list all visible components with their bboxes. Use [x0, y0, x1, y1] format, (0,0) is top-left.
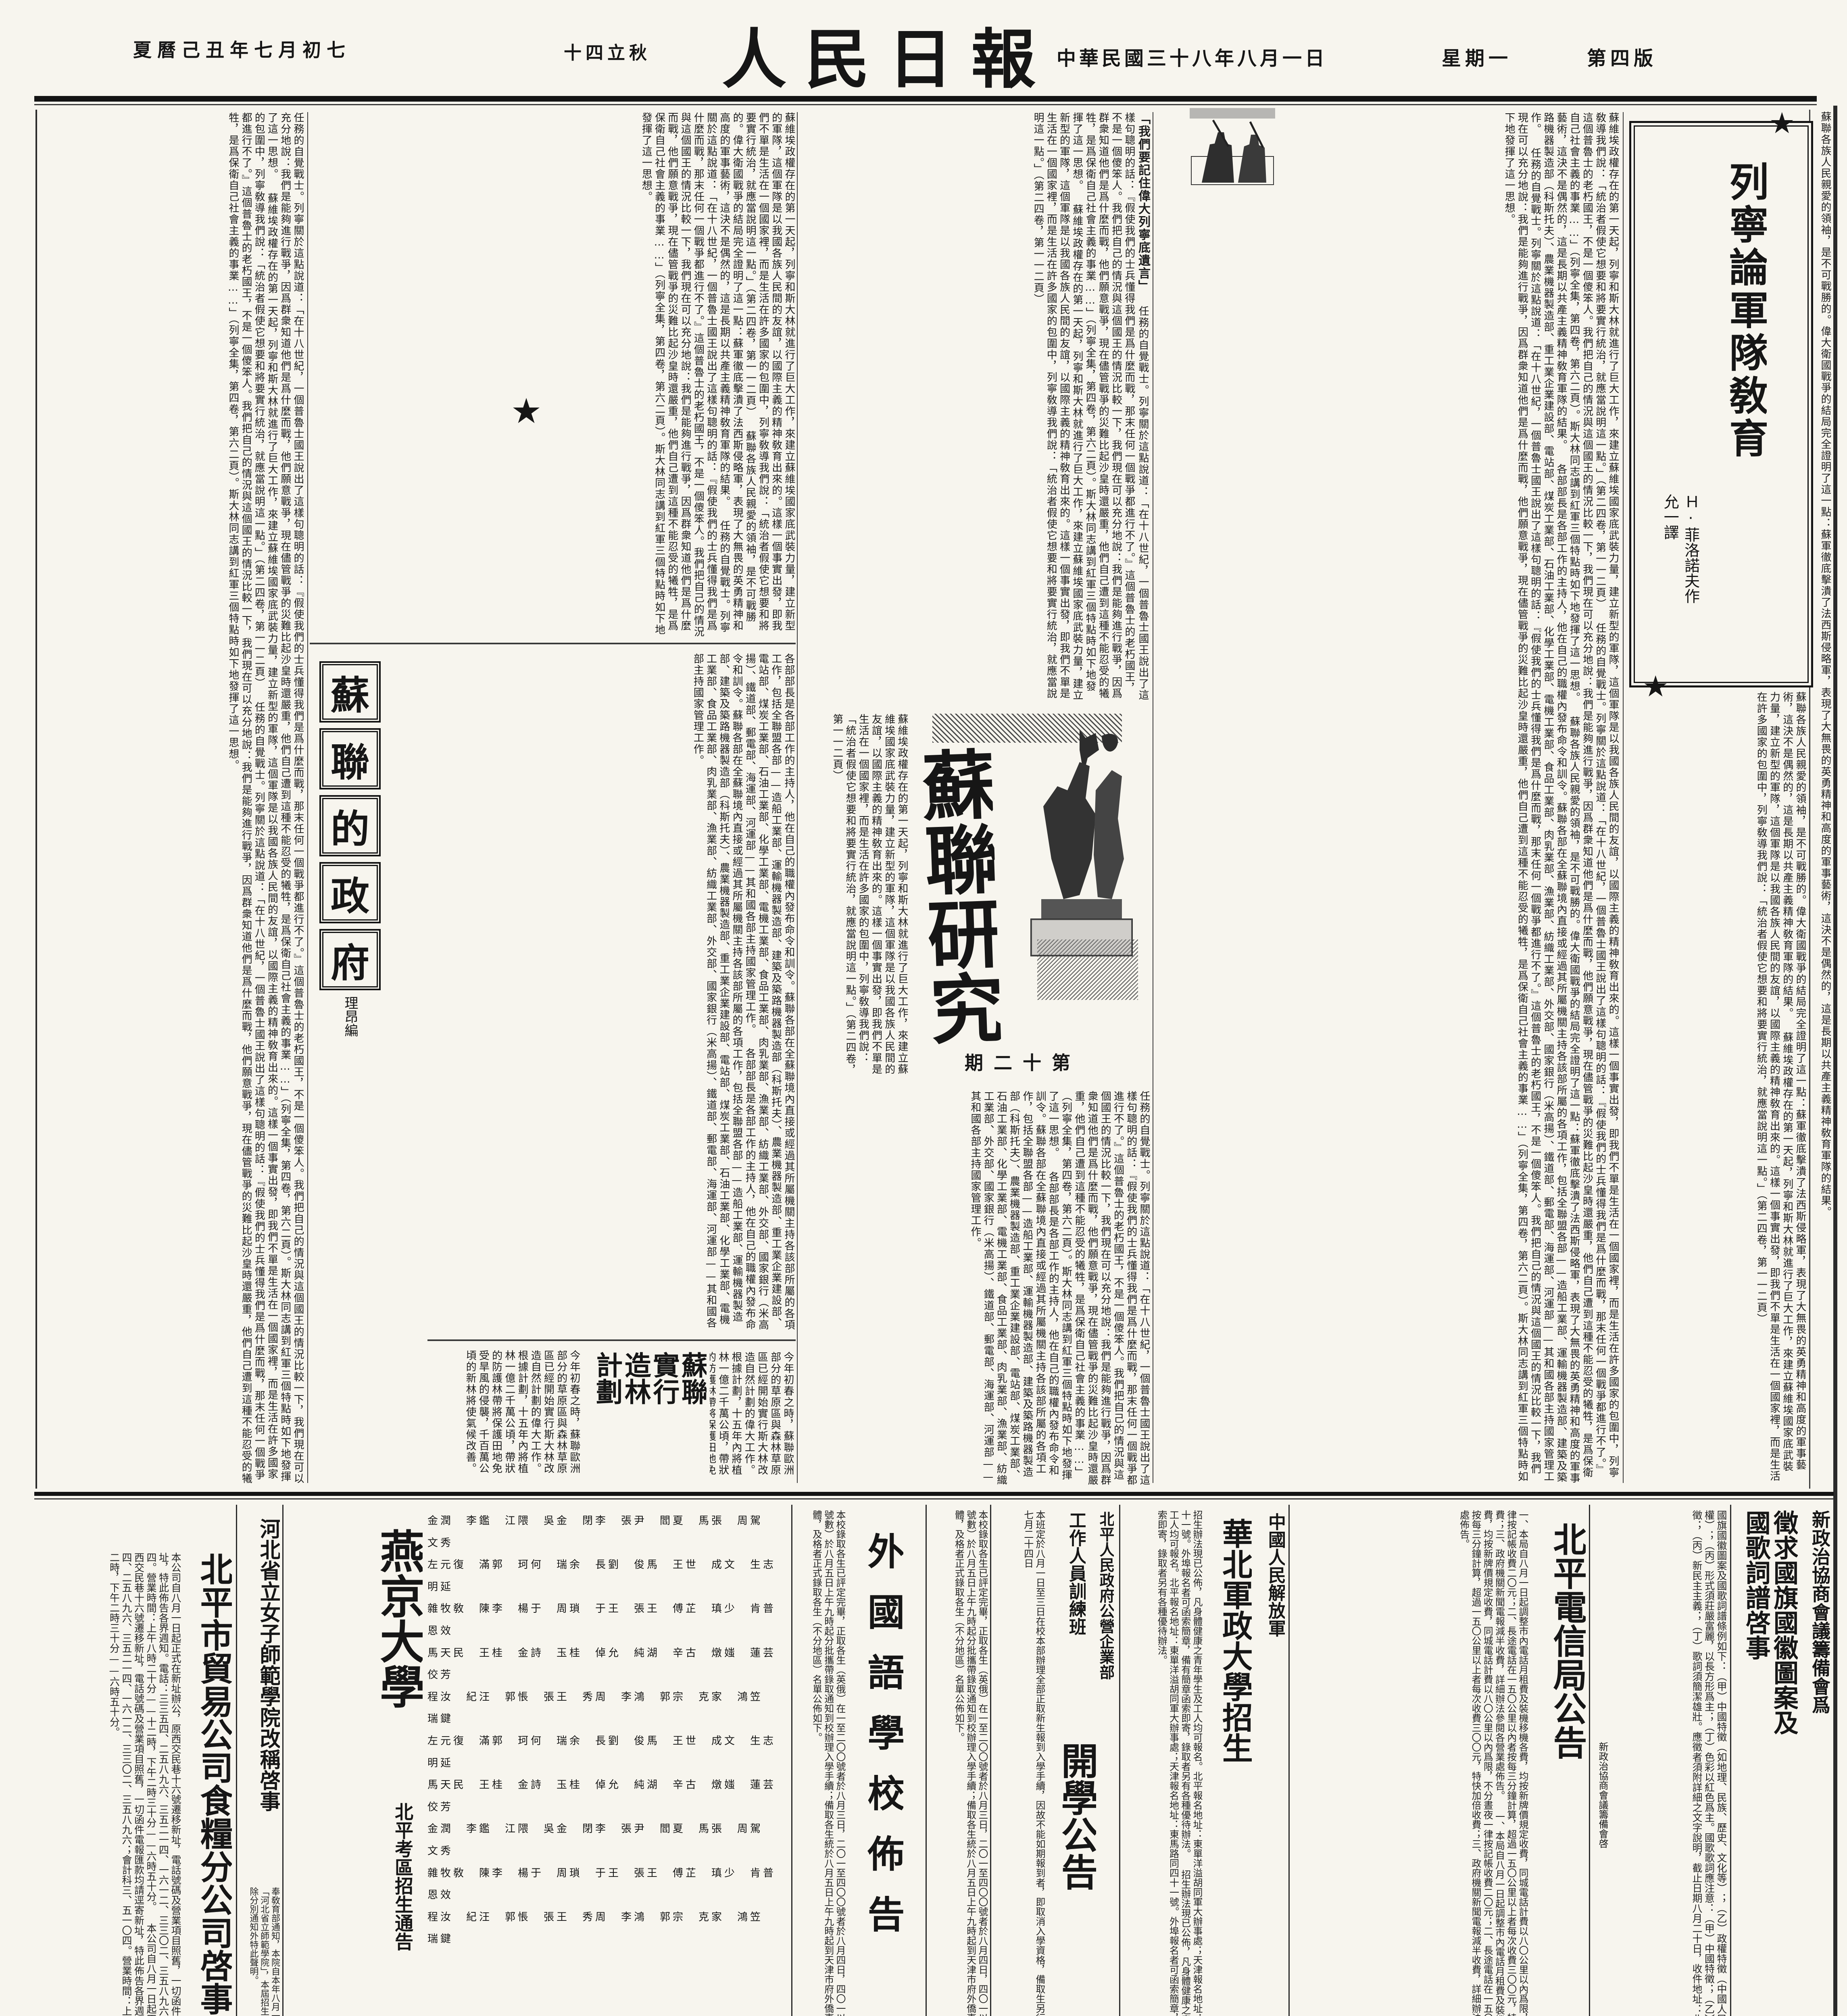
column-rule — [1623, 112, 1624, 1483]
flag-notice-title: 徵求國旗國徽圖案及國歌詞譜啓事 — [1737, 1510, 1798, 1744]
name-row: 馬天民 王桂 金詩 玉桂 倬允 純湖 辛古 燉媸 蓮芸 佼芳 — [427, 1774, 788, 1818]
right-margin-column: 蘇聯各族人民親愛的領袖，是不可戰勝的。偉大衛國戰爭的結局完全證明了這一點：蘇軍徹… — [1812, 111, 1832, 1486]
paragraph: 蘇維埃政權存在的第一天起，列寧和斯大林就進行了巨大工作，來建立蘇維埃國家底武裝力… — [1032, 112, 1083, 701]
lead-headline-box: ★ ★ 列寧論軍隊敎育 Ｈ·菲洛諾夫作 允一譯 — [1629, 121, 1813, 687]
lead-article-byline: Ｈ·菲洛諾夫作 允一譯 — [1659, 494, 1701, 623]
paragraph: 本班定於八月一日至三日在校本部辦理全部正取新生報到入學手續，因故不能如期報到者，… — [1034, 1510, 1045, 2016]
afforestation-headline: 蘇聯實行造林計劃 — [586, 1352, 707, 1413]
paragraph: 任務的自覺戰士。列寧關於這點說道：「在十八世紀，一個普魯士國王說出了這樣句聰明的… — [1503, 112, 1541, 1482]
flag-notice-org: 新政治協商會議籌備會爲 — [1802, 1510, 1830, 1768]
boxed-char: 政 — [319, 862, 381, 923]
magazine-issue-caption: 期二十第 — [965, 1048, 1081, 1075]
newspaper-page: 夏曆己丑年七月初七 十四立秋 人民日報 中華民國三十八年八月一日 星期一 第四版… — [0, 0, 1847, 2016]
header-rule-thin — [34, 104, 1817, 105]
frame-left-rule — [35, 110, 37, 1489]
telecom-title: 北平電信局公告 — [1533, 1522, 1586, 1788]
boxed-char: 蘇 — [319, 661, 381, 723]
article-columns-left-top: 蘇維埃政權存在的第一天起，列寧和斯大林就進行了巨大工作，來建立蘇維埃國家底武裝力… — [310, 112, 796, 638]
name-row: 程汝 紀汪 郭悵 張王 秀周 李鴻 郭宗 克家 鴻笠 瑞鍵 — [427, 1686, 788, 1730]
article-columns-right: 蘇維埃政權存在的第一天起，列寧和斯大林就進行了巨大工作，來建立蘇維埃國家底武裝力… — [1156, 112, 1620, 1485]
star-ornament-icon: ★ — [502, 387, 550, 435]
column-rule — [797, 112, 798, 1483]
header-lunar-date: 夏曆己丑年七月初七 — [133, 35, 351, 62]
lead-article-title: 列寧論軍隊敎育 — [1723, 161, 1767, 476]
flang-title: 外國語學校佈告 — [849, 1532, 903, 2000]
header-rule — [34, 96, 1817, 102]
column-rule — [307, 112, 308, 1483]
article-columns-far-left: 任務的自覺戰士。列寧關於這點說道：「在十八世紀，一個普魯士國王說出了這樣句聰明的… — [40, 112, 304, 1485]
magazine-title: 蘇聯研究 — [913, 746, 1002, 1054]
telecom-body: 一、本局自八月一日起調整市內電話月租費及裝機移機各費，均按新牌價規定收費，同城電… — [1295, 1510, 1528, 2016]
statue-illustration — [1019, 726, 1140, 1000]
ad-rule — [926, 1505, 927, 2016]
masthead-title: 人民日報 — [722, 7, 1054, 101]
soviet-gov-editor: 理昂編 — [340, 996, 360, 1068]
ad-rule — [282, 1505, 284, 2016]
name-row: 左元復 滿郭 珂何 瑞余 長劉 俊馬 王世 成文 生志 明延 — [427, 1730, 788, 1774]
ad-rule — [791, 1505, 792, 2016]
ad-rule — [1119, 1505, 1120, 2016]
mid-divider-rule — [34, 1492, 1834, 1496]
training-class: 工作人員訓練班 — [1061, 1511, 1086, 1656]
flang-body-left: 本校錄取各生已評定完畢，正取各生（英俄）在一至二〇〇號者於八月三日，二〇一至四〇… — [796, 1510, 846, 2016]
article-column: 蘇維埃政權存在的第一天起，列寧和斯大林就進行了巨大工作，來建立蘇維埃國家底武裝力… — [801, 714, 909, 1077]
name-row: 雜牧敎 陳李 楊于 周瑣 于王 張王 傅芷 瑱少 肯普 恩效 — [427, 1862, 788, 1906]
yanjing-subtitle: 北平考區招生通告 — [369, 1802, 413, 2012]
trade-title: 北平市貿易公司食糧分公司啓事 — [186, 1552, 232, 2016]
article-columns-middle: 「我們要記住偉大列寧底遺言」 任務的自覺戰士。列寧關於這點說道：「在十八世紀，一… — [801, 112, 1151, 701]
ad-rule — [1589, 1505, 1590, 2016]
ad-rule — [1730, 1505, 1731, 2016]
ad-rule — [990, 1505, 991, 2016]
header-weekday: 星期一 — [1442, 42, 1512, 71]
soldier-illustration-svg — [1190, 108, 1275, 191]
header-date: 中華民國三十八年八月一日 — [1057, 42, 1328, 71]
column-rule — [1153, 112, 1153, 1483]
name-row: 金潤 李鑑 江隈 吳金 閉李 張尹 閻夏 馬張 周駕 文秀 — [427, 1818, 788, 1862]
yanjing-name-list: 金潤 李鑑 江隈 吳金 閉李 張尹 閻夏 馬張 周駕 文秀 左元復 滿郭 珂何 … — [427, 1510, 788, 2016]
flag-notice-body: 國旗國徽圖案及國歌詞譜條例如下：（甲）中國特徵（如地理、民族、歷史、文化等）；（… — [1611, 1510, 1727, 2016]
hebei-body: 奉敎育部通知，本院自本年八月一日起改稱「河北省立師範學院」，本屆招生男女兼收，除… — [247, 1887, 280, 2016]
afforestation-body: 今年初春之時，蘇聯歐洲部分的草原區與森林草原區已經開始實行斯大林改造自然計劃的偉… — [428, 1350, 581, 1485]
lead-article-text: 蘇聯各族人民親愛的領袖，是不可戰勝的。偉大衛國戰爭的結局完全證明了這一點：蘇軍徹… — [1626, 691, 1807, 1482]
milu-prefix: 中國人民解放軍 — [1257, 1513, 1285, 1658]
soldier-illustration — [1190, 108, 1275, 191]
frame-right-rule — [1833, 106, 1837, 2016]
statue-illustration-svg — [1019, 726, 1140, 1000]
section-rule — [310, 643, 796, 644]
training-dept: 北平人民政府公營企業部 — [1090, 1511, 1114, 1721]
name-row: 雜牧敎 陳李 楊于 周瑣 于王 張王 傅芷 瑱少 肯普 恩效 — [427, 1598, 788, 1642]
soviet-gov-title-block: 蘇 聯 的 政 府 理昂編 — [319, 661, 381, 1060]
header-solar-term: 十四立秋 — [564, 38, 651, 64]
boxed-char: 聯 — [319, 728, 381, 789]
name-row: 左元復 滿郭 珂何 瑞余 長劉 俊馬 王世 成文 生志 明延 — [427, 1554, 788, 1598]
boxed-char: 府 — [319, 929, 381, 990]
paragraph: 任務的自覺戰士。列寧關於這點說道：「在十八世紀，一個普魯士國王說出了這樣句聰明的… — [640, 112, 730, 637]
flag-notice-signature: 新政治協商會議籌備會啓 — [1592, 1742, 1610, 2016]
milu-body: 招生辦法現已公佈，凡身體健康之青年學生及工人均可報名。北平報名地址：東單洋溢胡同… — [1122, 1510, 1203, 2016]
milu-title: 華北軍政大學招生 — [1207, 1518, 1252, 1792]
yanjing-title: 燕京大學 — [358, 1528, 423, 1778]
boxed-char: 的 — [319, 795, 381, 856]
name-row: 程汝 紀汪 郭悵 張王 秀周 李鴻 郭宗 克家 鴻笠 瑞鍵 — [427, 1906, 788, 1950]
flang-body-right: 本校錄取各生已評定完畢，正取各生（英俄）在一至二〇〇號者於八月三日，二〇一至四〇… — [928, 1510, 988, 2016]
afforestation-body-right: 今年初春之時，蘇聯歐洲部分的草原區與森林草原區已經開始實行斯大林改造自然計劃的偉… — [710, 1352, 794, 1485]
magazine-cover: 蘇聯研究 期二十第 — [916, 714, 1140, 1079]
name-row: 馬天民 王桂 金詩 玉桂 倬允 純湖 辛古 燉媸 蓮芸 佼芳 — [427, 1642, 788, 1686]
ad-rule — [236, 1505, 237, 2016]
soviet-gov-article: 各部部長是各部工作的主持人，他在自己的職權內發布命令和訓令。蘇聯各部在全蘇聯境內… — [392, 653, 795, 1331]
section-rule — [427, 1339, 796, 1341]
trade-body: 本公司自八月一日起正式在新址辦公，原西交民巷十六號遷移新址，電話號碼及營業項目照… — [40, 1552, 181, 2016]
name-row: 金潤 李鑑 江隈 吳金 閉李 張尹 閻夏 馬張 周駕 文秀 — [427, 1510, 788, 1554]
paragraph: 各部部長是各部工作的主持人，他在自己的職權內發布命令和訓令。蘇聯各部在全蘇聯境內… — [969, 1091, 1059, 1486]
training-date: 七月二十四日 — [1022, 1510, 1034, 1568]
star-icon: ★ — [1769, 106, 1795, 140]
ad-rule — [1288, 1505, 1290, 2016]
training-body: 本班定於八月一日至三日在校本部辦理全部正取新生報到入學手續，因故不能如期報到者，… — [993, 1510, 1045, 2016]
paragraph: 任務的自覺戰士。列寧關於這點說道：「在十八世紀，一個普魯士國王說出了這樣句聰明的… — [1047, 1091, 1150, 1486]
quote-subhead: 「我們要記住偉大列寧底遺言」 — [1136, 112, 1150, 293]
hebei-title: 河北省立女子師範學院改稱啓事 — [249, 1518, 280, 1873]
article-columns-below-cover: 任務的自覺戰士。列寧關於這點說道：「在十八世紀，一個普魯士國王說出了這樣句聰明的… — [801, 1091, 1151, 1486]
header-page-number: 第四版 — [1587, 42, 1657, 71]
mid-divider-rule-thin — [34, 1498, 1834, 1500]
training-notice-title: 開學公告 — [1048, 1742, 1096, 1911]
